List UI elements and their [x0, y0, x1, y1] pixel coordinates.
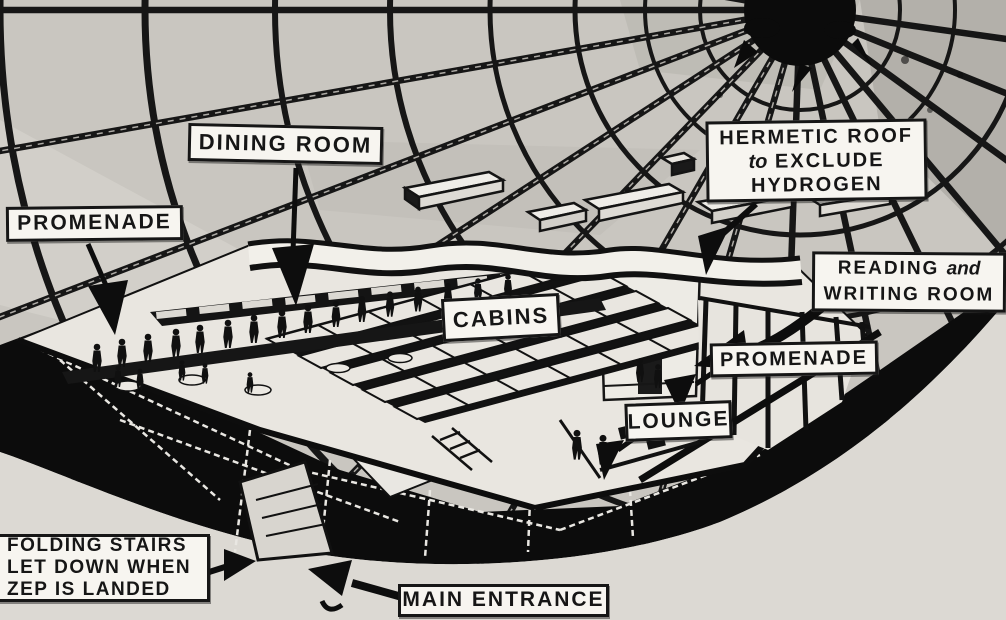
label-text-line3: ZEP IS LANDED — [7, 579, 171, 601]
label-text: PROMENADE — [17, 212, 172, 236]
label-text: DINING ROOM — [198, 131, 372, 158]
label-promenade-left: PROMENADE — [6, 205, 183, 242]
label-text-line3: HYDROGEN — [751, 172, 883, 198]
label-cabins: CABINS — [441, 293, 561, 342]
label-text-line2: LET DOWN WHEN — [7, 557, 191, 579]
label-text-line2: WRITING ROOM — [823, 281, 994, 308]
label-hermetic-roof: HERMETIC ROOF to EXCLUDE HYDROGEN — [705, 118, 927, 202]
label-text-line1-main: READING — [838, 258, 940, 280]
label-text: LOUNGE — [627, 408, 730, 434]
label-text: CABINS — [452, 303, 549, 331]
label-connector-word: and — [947, 258, 981, 279]
label-dining-room: DINING ROOM — [188, 123, 384, 165]
label-text: MAIN ENTRANCE — [402, 589, 604, 611]
label-text-line1: READING and — [838, 256, 981, 283]
label-text-line2-rest: EXCLUDE — [775, 149, 885, 173]
label-connector-word: to — [748, 150, 767, 172]
label-main-entrance: MAIN ENTRANCE — [398, 584, 609, 617]
label-folding-stairs: FOLDING STAIRS LET DOWN WHEN ZEP IS LAND… — [0, 534, 210, 602]
label-text-line2: to EXCLUDE — [748, 148, 884, 174]
label-lounge: LOUNGE — [624, 400, 732, 442]
label-text: PROMENADE — [720, 347, 868, 371]
label-promenade-right: PROMENADE — [710, 341, 879, 378]
label-reading-writing-room: READING and WRITING ROOM — [812, 251, 1006, 312]
zeppelin-cutaway-illustration: PROMENADE DINING ROOM HERMETIC ROOF to E… — [0, 0, 1006, 620]
label-text-line1: FOLDING STAIRS — [7, 535, 187, 557]
label-text-line1: HERMETIC ROOF — [719, 123, 913, 150]
